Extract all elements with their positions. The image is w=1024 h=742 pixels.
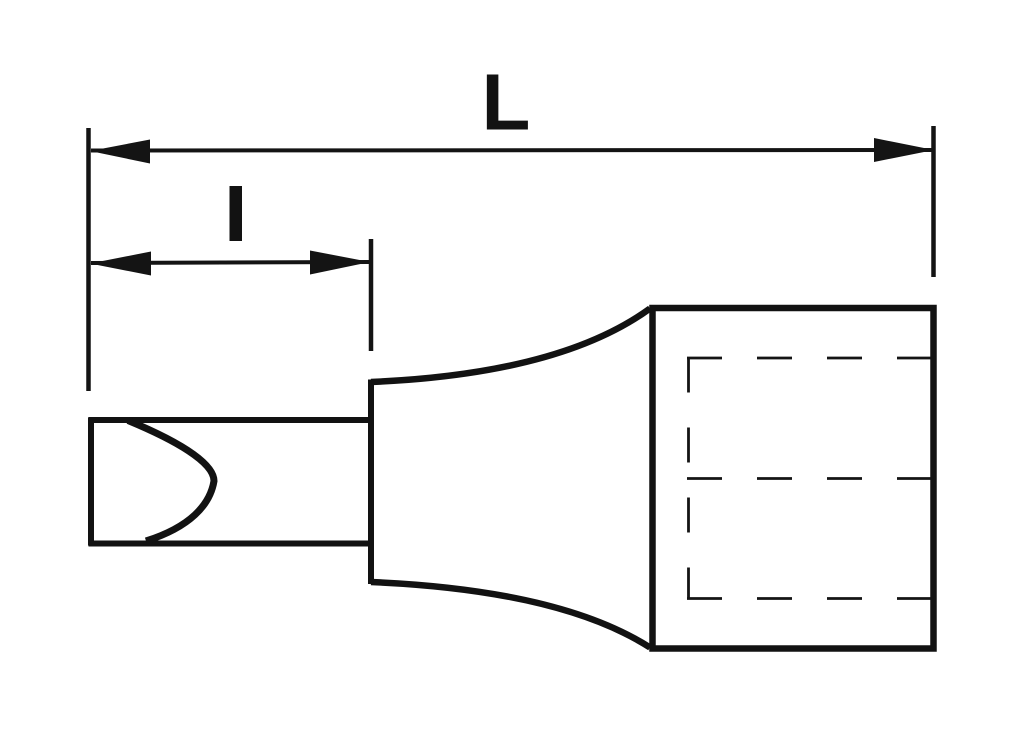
svg-text:L: L — [482, 58, 531, 147]
